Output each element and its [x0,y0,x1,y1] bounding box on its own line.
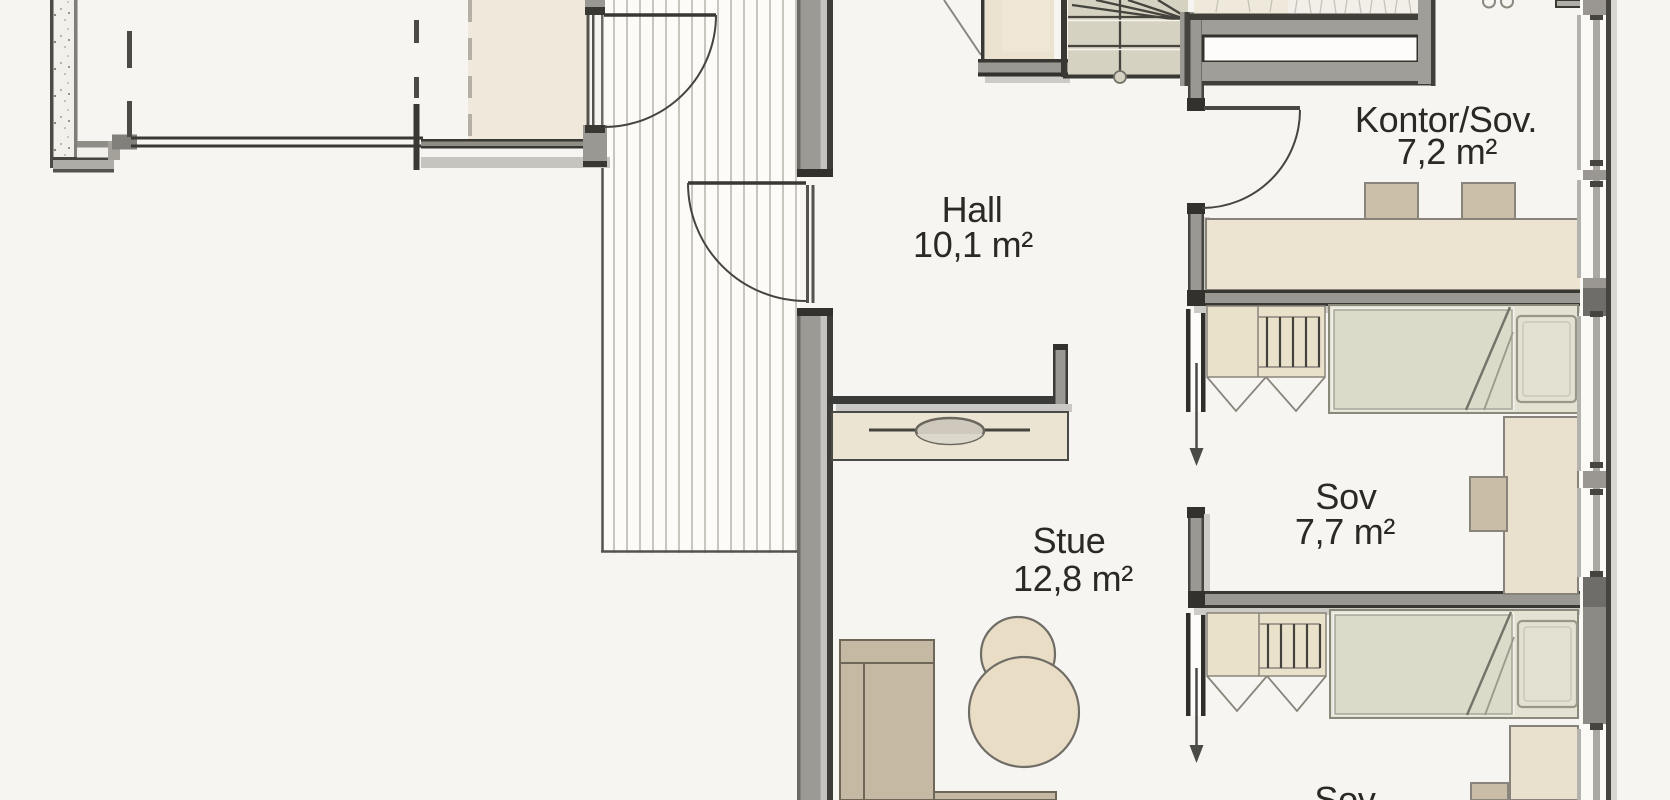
svg-text:Sov: Sov [1314,779,1375,800]
svg-text:Stue: Stue [1033,520,1106,561]
svg-text:10,1 m²: 10,1 m² [913,224,1033,265]
svg-text:12,8 m²: 12,8 m² [1013,558,1133,599]
svg-text:7,7 m²: 7,7 m² [1295,511,1396,552]
svg-text:7,2 m²: 7,2 m² [1397,131,1498,172]
